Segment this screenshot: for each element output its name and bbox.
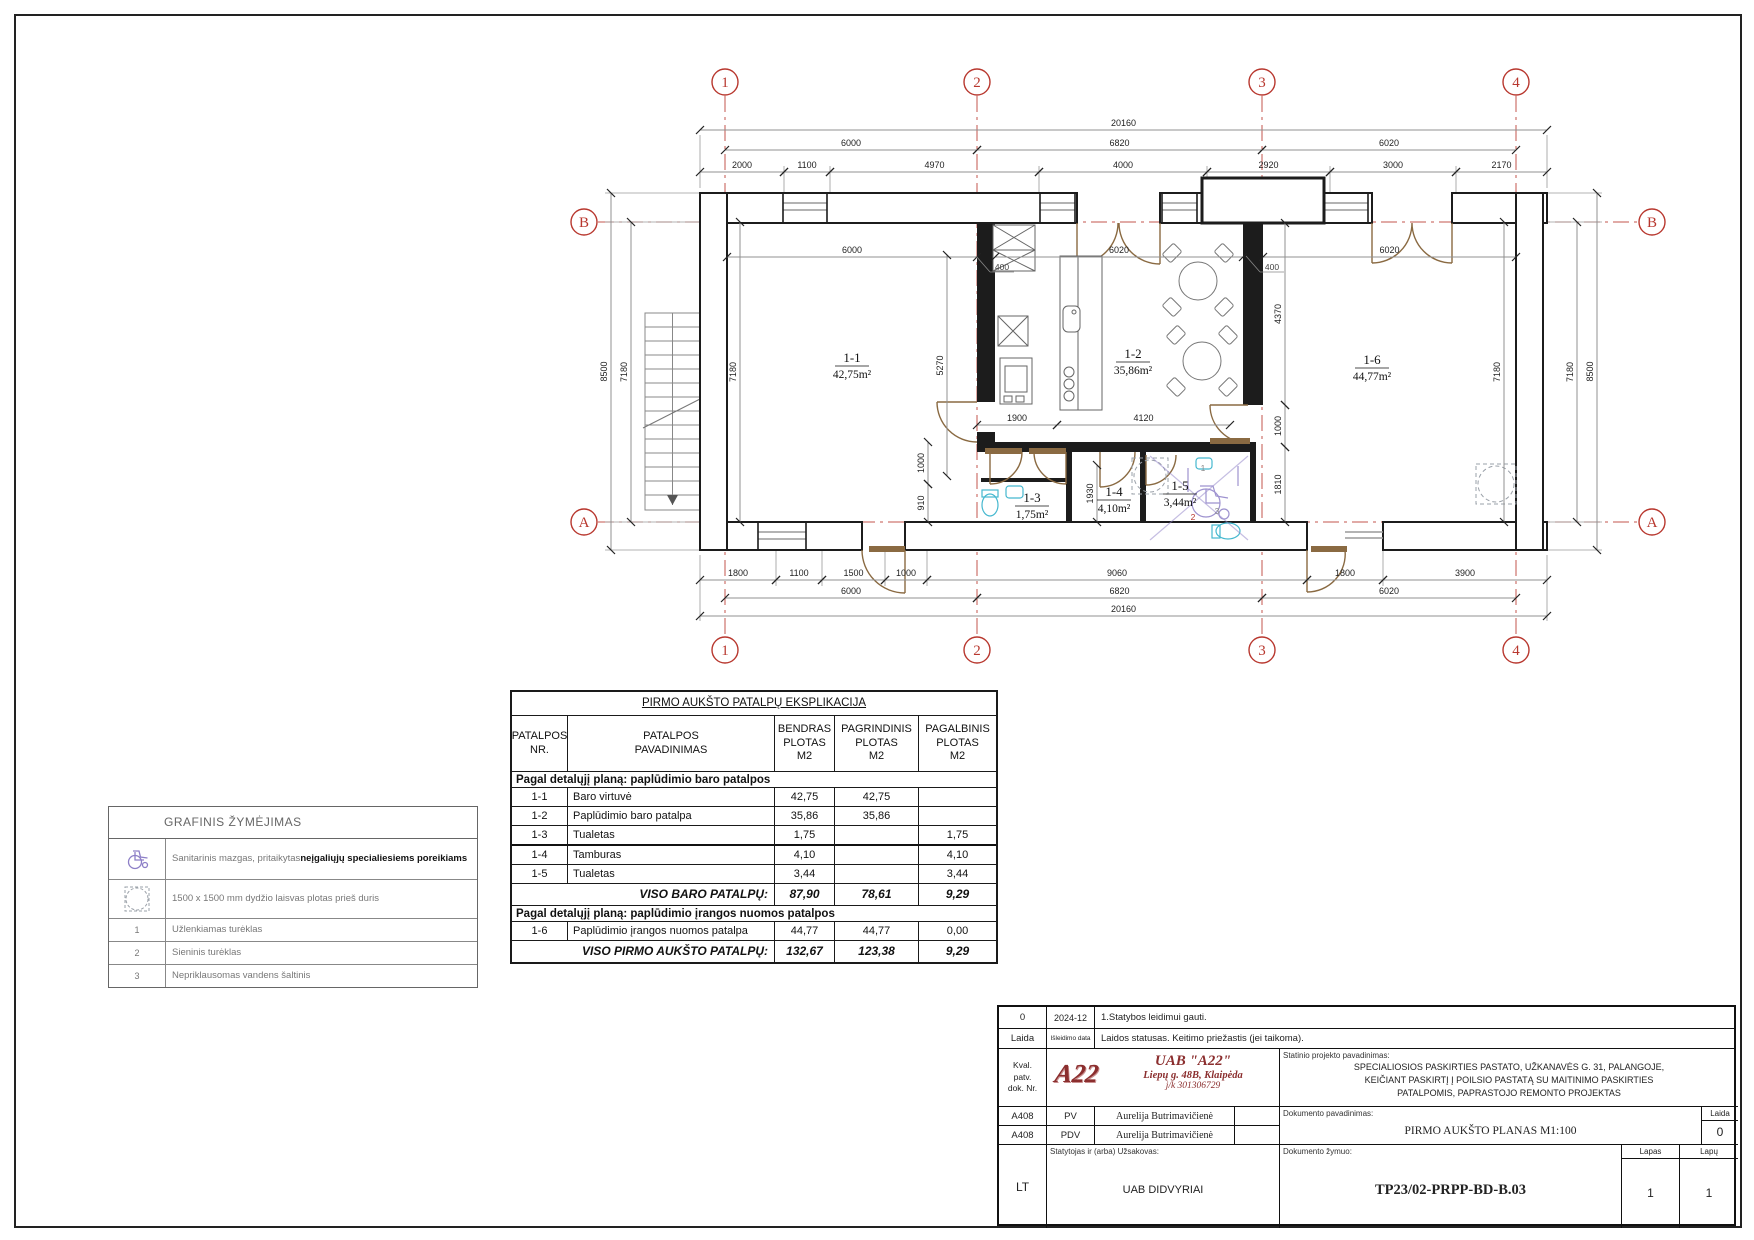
table-cell: Paplūdimio baro patalpa (568, 807, 775, 826)
legend-body: Sanitarinis mazgas, pritaikytas neįgalių… (109, 839, 477, 987)
total-row: VISO PIRMO AUKŠTO PATALPŲ:132,67123,389,… (512, 941, 996, 962)
legend-row: Sanitarinis mazgas, pritaikytas neįgalių… (109, 839, 477, 880)
company-address: Liepų g. 48B, Klaipėda (1109, 1070, 1277, 1081)
table-cell: 87,90 (775, 884, 835, 906)
language-cell: LT (999, 1145, 1047, 1228)
table-cell: 1-1 (512, 788, 568, 807)
table-cell: Tualetas (568, 865, 775, 884)
lapas-value: 1 (1622, 1158, 1679, 1228)
total-row: VISO BARO PATALPŲ:87,9078,619,29 (512, 884, 996, 906)
table-row: 1-1Baro virtuvė42,7542,75 (512, 788, 996, 807)
wheelchair-icon (109, 839, 166, 879)
table-cell: 1-5 (512, 865, 568, 884)
legend-text: Užlenkiamas turėklas (166, 919, 477, 941)
table-cell: 1-4 (512, 846, 568, 865)
legend-row: 2Sieninis turėklas (109, 942, 477, 965)
table-cell: 44,77 (835, 922, 919, 941)
table-cell: 42,75 (835, 788, 919, 807)
document-code-cell: Dokumento žymuo: TP23/02-PRPP-BD-B.03 (1280, 1145, 1622, 1228)
section-heading: Pagal detalųjį planą: paplūdimio įrangos… (512, 906, 996, 922)
clearance-icon (109, 880, 166, 918)
col-header: BENDRAS PLOTAS M2 (775, 716, 835, 772)
date-header: Išleidimo data (1047, 1029, 1095, 1049)
table-cell: 1-6 (512, 922, 568, 941)
legend-text: 1500 x 1500 mm dydžio laisvas plotas pri… (166, 880, 477, 918)
laida-cell: Laida 0 (1702, 1107, 1738, 1145)
table-cell: 132,67 (775, 941, 835, 962)
lapas-cell: Lapas 1 (1622, 1145, 1680, 1228)
project-cell: Statinio projekto pavadinimas: SPECIALIO… (1280, 1049, 1738, 1107)
table-cell: 1-3 (512, 826, 568, 846)
cert-number: A408 (999, 1126, 1047, 1145)
table-cell: 42,75 (775, 788, 835, 807)
table-cell (919, 807, 996, 826)
laida-value: 0 (1702, 1120, 1738, 1144)
revision-date: 2024-12 (1047, 1007, 1095, 1029)
table-cell: 0,00 (919, 922, 996, 941)
company-name: UAB "A22" (1109, 1053, 1277, 1070)
document-name: PIRMO AUKŠTO PLANAS M1:100 (1280, 1119, 1701, 1143)
legend-ref-number: 2 (109, 942, 166, 964)
lapu-value: 1 (1680, 1158, 1738, 1228)
explication-body: Pagal detalųjį planą: paplūdimio baro pa… (512, 772, 996, 962)
table-cell: Tamburas (568, 846, 775, 865)
table-cell: Tualetas (568, 826, 775, 846)
table-row: 1-6Paplūdimio įrangos nuomos patalpa44,7… (512, 922, 996, 941)
revision-note: 1.Statybos leidimui gauti. (1095, 1007, 1734, 1029)
legend-row: 1500 x 1500 mm dydžio laisvas plotas pri… (109, 880, 477, 919)
role-pv: PV (1047, 1107, 1095, 1126)
table-cell: 123,38 (835, 941, 919, 962)
table-cell: 78,61 (835, 884, 919, 906)
document-code-label: Dokumento žymuo: (1283, 1147, 1352, 1156)
explication-header: PATALPOS NR. PATALPOS PAVADINIMAS BENDRA… (512, 716, 996, 772)
col-header: PAGRINDINIS PLOTAS M2 (835, 716, 919, 772)
client-label: Statytojas ir (arba) Užsakovas: (1050, 1147, 1159, 1156)
table-cell: 1-2 (512, 807, 568, 826)
table-row: 1-3Tualetas1,751,75 (512, 826, 996, 846)
legend-row: 1Užlenkiamas turėklas (109, 919, 477, 942)
legend-text: Sieninis turėklas (166, 942, 477, 964)
col-header: PATALPOS PAVADINIMAS (568, 716, 775, 772)
total-label: VISO BARO PATALPŲ: (512, 884, 775, 906)
explication-title: PIRMO AUKŠTO PATALPŲ EKSPLIKACIJA (512, 692, 996, 716)
table-cell: 9,29 (919, 884, 996, 906)
table-row: 1-5Tualetas3,443,44 (512, 865, 996, 884)
legend-title: GRAFINIS ŽYMĖJIMAS (109, 807, 477, 839)
table-row: 1-2Paplūdimio baro patalpa35,8635,86 (512, 807, 996, 826)
client-name: UAB DIDVYRIAI (1047, 1175, 1279, 1205)
company-cell: A22 UAB "A22" Liepų g. 48B, Klaipėda j/k… (1047, 1049, 1280, 1107)
table-cell: 1,75 (775, 826, 835, 846)
drawing-sheet: 2016060006820602020001100497040002920300… (0, 0, 1754, 1240)
col-header: PAGALBINIS PLOTAS M2 (919, 716, 996, 772)
document-code: TP23/02-PRPP-BD-B.03 (1280, 1170, 1621, 1210)
legend-text: Nepriklausomas vandens šaltinis (166, 965, 477, 987)
legend-ref-number: 3 (109, 965, 166, 987)
table-cell: 4,10 (775, 846, 835, 865)
role-pdv: PDV (1047, 1126, 1095, 1145)
table-cell: 44,77 (775, 922, 835, 941)
table-row: 1-4Tamburas4,104,10 (512, 846, 996, 865)
legend-table: GRAFINIS ŽYMĖJIMAS Sanitarinis mazgas, p… (108, 806, 478, 988)
table-cell (919, 788, 996, 807)
signature-cell (1235, 1126, 1280, 1145)
company-logo: A22 (1053, 1059, 1101, 1089)
person-name: Aurelija Butrimavičienė (1095, 1126, 1235, 1145)
table-cell (835, 826, 919, 846)
total-label: VISO PIRMO AUKŠTO PATALPŲ: (512, 941, 775, 962)
explication-table: PIRMO AUKŠTO PATALPŲ EKSPLIKACIJA PATALP… (510, 690, 998, 964)
table-cell: Paplūdimio įrangos nuomos patalpa (568, 922, 775, 941)
signature-cell (1235, 1107, 1280, 1126)
table-cell: 4,10 (919, 846, 996, 865)
table-cell: 35,86 (835, 807, 919, 826)
table-cell: Baro virtuvė (568, 788, 775, 807)
table-cell: 3,44 (775, 865, 835, 884)
document-name-cell: Dokumento pavadinimas: PIRMO AUKŠTO PLAN… (1280, 1107, 1702, 1145)
section-heading: Pagal detalųjį planą: paplūdimio baro pa… (512, 772, 996, 788)
document-name-label: Dokumento pavadinimas: (1283, 1109, 1373, 1118)
title-block: 0 2024-12 1.Statybos leidimui gauti. Lai… (997, 1005, 1736, 1226)
table-cell: 35,86 (775, 807, 835, 826)
lapu-label: Lapų (1680, 1145, 1738, 1159)
status-header: Laidos statusas. Keitimo priežastis (jei… (1095, 1029, 1734, 1049)
legend-text: Sanitarinis mazgas, pritaikytas neįgalių… (166, 839, 477, 879)
company-code: j/k 301306729 (1109, 1081, 1277, 1091)
table-cell: 9,29 (919, 941, 996, 962)
lapu-cell: Lapų 1 (1680, 1145, 1738, 1228)
revision-number: 0 (999, 1007, 1047, 1029)
project-name: SPECIALIOSIOS PASKIRTIES PASTATO, UŽKANA… (1280, 1061, 1738, 1100)
col-header: PATALPOS NR. (512, 716, 568, 772)
table-cell (835, 865, 919, 884)
table-cell: 3,44 (919, 865, 996, 884)
lapas-label: Lapas (1622, 1145, 1679, 1159)
cert-number: A408 (999, 1107, 1047, 1126)
project-label: Statinio projekto pavadinimas: (1283, 1051, 1390, 1060)
laida-header: Laida (999, 1029, 1047, 1049)
legend-row: 3Nepriklausomas vandens šaltinis (109, 965, 477, 987)
legend-ref-number: 1 (109, 919, 166, 941)
table-cell (835, 846, 919, 865)
laida-mini-label: Laida (1702, 1107, 1738, 1121)
table-cell: 1,75 (919, 826, 996, 846)
client-cell: Statytojas ir (arba) Užsakovas: UAB DIDV… (1047, 1145, 1280, 1228)
qualification-cell: Kval. patv. dok. Nr. (999, 1049, 1047, 1107)
person-name: Aurelija Butrimavičienė (1095, 1107, 1235, 1126)
